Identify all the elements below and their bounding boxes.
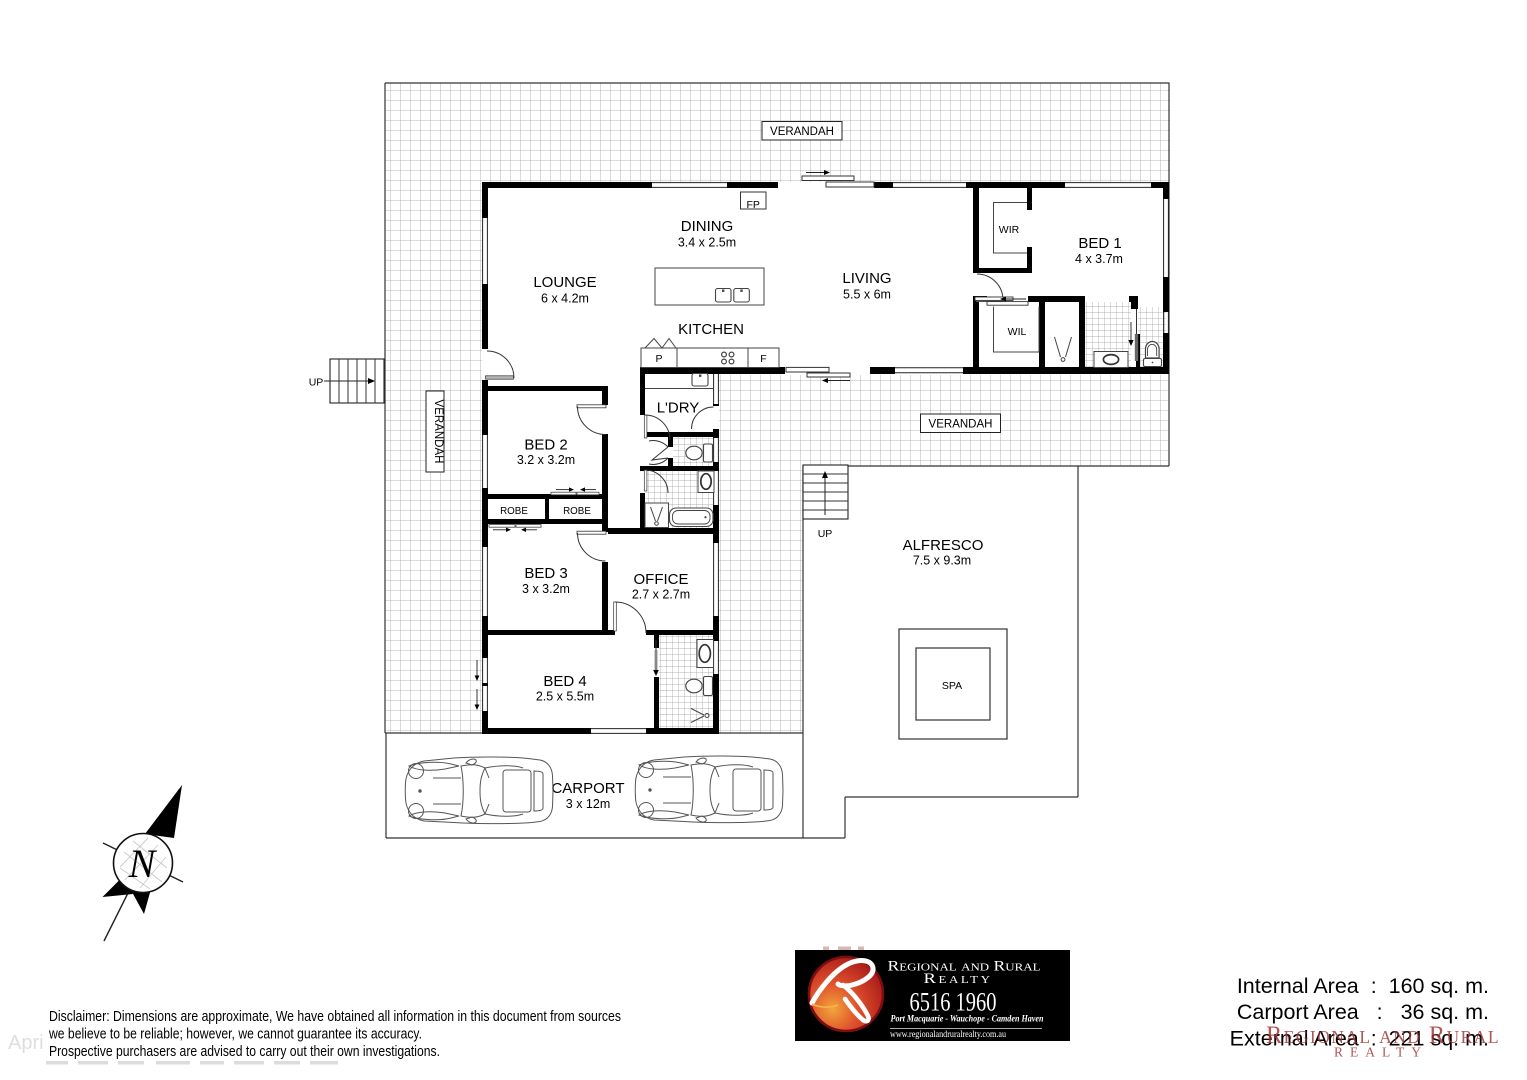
svg-text:F: F — [760, 353, 766, 365]
svg-text:DINING: DINING — [681, 218, 734, 235]
svg-text:7.5 x 9.3m: 7.5 x 9.3m — [913, 554, 971, 568]
svg-text:SPA: SPA — [942, 680, 962, 692]
svg-text:Carport Area : 36 sq. m.: Carport Area : 36 sq. m. — [1237, 1000, 1489, 1024]
svg-text:UP: UP — [309, 377, 324, 389]
svg-text:WIR: WIR — [999, 224, 1020, 236]
svg-text:LOUNGE: LOUNGE — [533, 274, 596, 291]
svg-text:N: N — [128, 841, 158, 886]
svg-text:we believe to be reliable; how: we believe to be reliable; however, we c… — [48, 1027, 422, 1043]
svg-text:2.5 x 5.5m: 2.5 x 5.5m — [536, 690, 594, 704]
svg-text:Disclaimer: Dimensions are app: Disclaimer: Dimensions are approximate, … — [49, 1009, 621, 1025]
svg-text:www.regionalandruralrealty.com: www.regionalandruralrealty.com.au — [890, 1030, 1006, 1040]
svg-text:VERANDAH: VERANDAH — [770, 126, 834, 138]
svg-text:L'DRY: L'DRY — [657, 400, 700, 417]
svg-text:5.5 x 6m: 5.5 x 6m — [843, 288, 891, 302]
svg-text:VERANDAH: VERANDAH — [929, 419, 993, 431]
svg-text:WIL: WIL — [1008, 326, 1027, 338]
svg-text:ROBE: ROBE — [500, 506, 528, 517]
svg-text:CARPORT: CARPORT — [551, 780, 624, 797]
svg-text:Apri: Apri — [8, 1032, 44, 1054]
svg-text:Prospective purchasers are adv: Prospective purchasers are advised to ca… — [49, 1044, 440, 1060]
svg-text:ALFRESCO: ALFRESCO — [903, 537, 984, 554]
svg-text:BED 3: BED 3 — [524, 565, 567, 582]
svg-text:ROBE: ROBE — [563, 506, 591, 517]
svg-text:3 x 3.2m: 3 x 3.2m — [522, 582, 570, 596]
svg-text:REALTY: REALTY — [1334, 1045, 1428, 1060]
svg-text:LIVING: LIVING — [842, 270, 891, 287]
svg-text:6516 1960: 6516 1960 — [910, 988, 997, 1017]
svg-text:Internal Area : 160 sq. m.: Internal Area : 160 sq. m. — [1237, 974, 1489, 998]
svg-text:VERANDAH: VERANDAH — [432, 400, 444, 464]
svg-text:P: P — [655, 353, 662, 365]
svg-text:6 x 4.2m: 6 x 4.2m — [541, 292, 589, 306]
svg-text:BED 4: BED 4 — [543, 673, 586, 690]
svg-text:4 x 3.7m: 4 x 3.7m — [1075, 252, 1123, 266]
svg-text:Port Macquarie - Wauchope - Ca: Port Macquarie - Wauchope - Camden Haven — [891, 1014, 1044, 1024]
svg-text:3.2 x 3.2m: 3.2 x 3.2m — [517, 453, 575, 467]
svg-text:UP: UP — [818, 528, 833, 540]
svg-text:FP: FP — [746, 199, 759, 211]
svg-text:2.7 x 2.7m: 2.7 x 2.7m — [632, 588, 690, 602]
svg-text:OFFICE: OFFICE — [634, 571, 689, 588]
svg-text:BED 1: BED 1 — [1078, 235, 1121, 252]
svg-text:KITCHEN: KITCHEN — [678, 321, 744, 338]
svg-text:3 x 12m: 3 x 12m — [566, 797, 610, 811]
svg-text:BED 2: BED 2 — [524, 437, 567, 454]
svg-text:3.4 x 2.5m: 3.4 x 2.5m — [678, 236, 736, 250]
svg-text:Realty: Realty — [924, 971, 993, 987]
